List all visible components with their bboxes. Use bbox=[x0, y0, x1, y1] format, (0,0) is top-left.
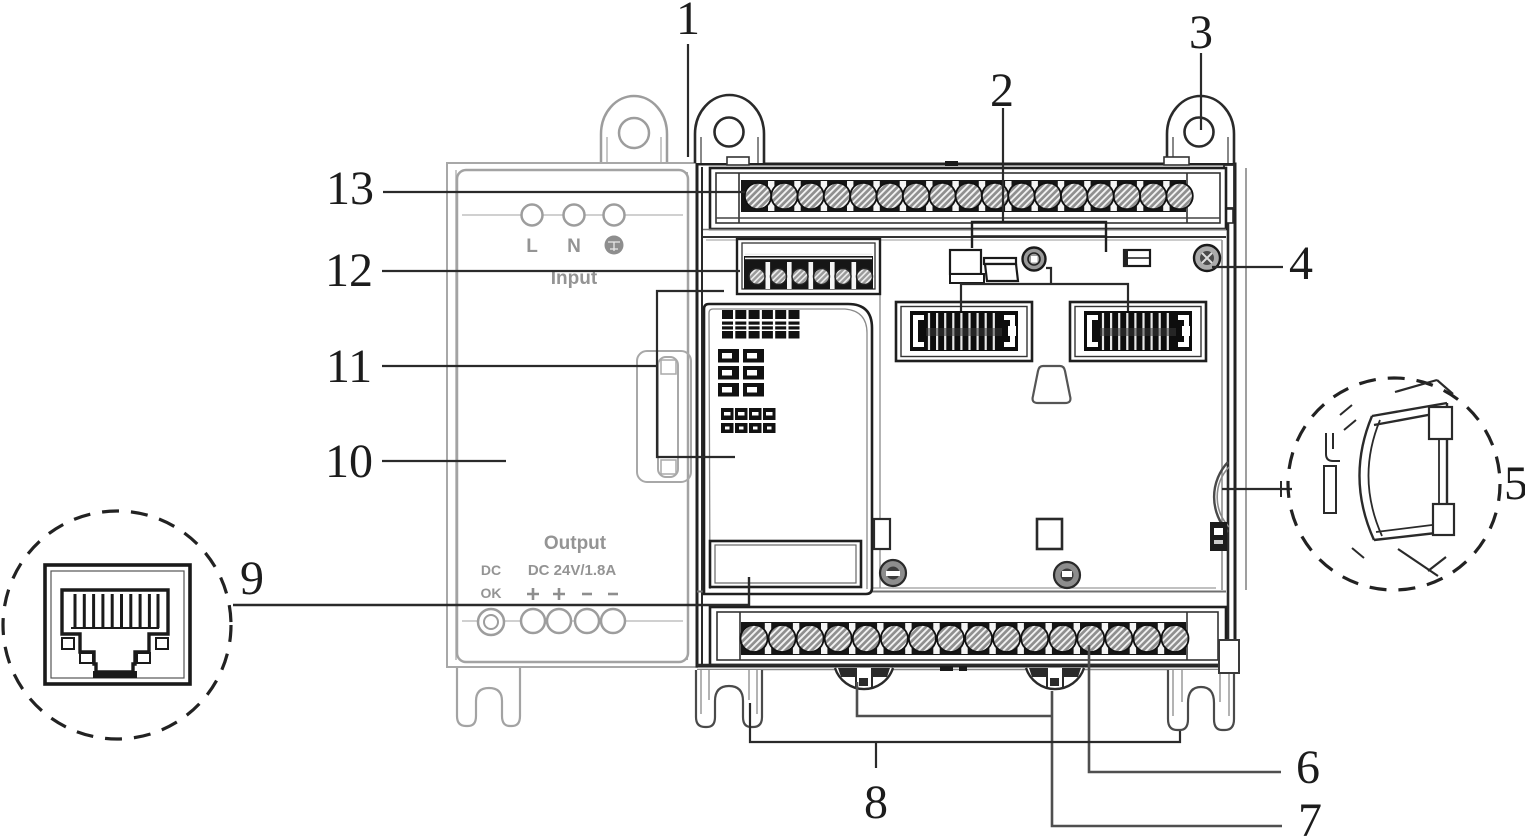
svg-text:3: 3 bbox=[1189, 6, 1213, 59]
svg-text:8: 8 bbox=[864, 776, 888, 829]
svg-text:9: 9 bbox=[240, 552, 264, 605]
svg-text:7: 7 bbox=[1298, 794, 1322, 837]
svg-text:L: L bbox=[526, 236, 538, 257]
svg-text:OK: OK bbox=[481, 585, 502, 601]
svg-text:N: N bbox=[567, 236, 581, 257]
svg-text:1: 1 bbox=[676, 0, 700, 45]
svg-text:13: 13 bbox=[326, 162, 374, 215]
svg-text:Output: Output bbox=[544, 533, 607, 554]
svg-text:DC: DC bbox=[481, 562, 501, 578]
svg-text:DC 24V/1.8A: DC 24V/1.8A bbox=[528, 562, 617, 579]
svg-text:10: 10 bbox=[325, 435, 373, 488]
svg-text:5: 5 bbox=[1504, 457, 1525, 510]
svg-text:2: 2 bbox=[990, 64, 1014, 117]
svg-text:11: 11 bbox=[326, 340, 372, 393]
svg-text:4: 4 bbox=[1289, 237, 1313, 290]
svg-text:6: 6 bbox=[1296, 741, 1320, 794]
svg-text:12: 12 bbox=[325, 244, 373, 297]
